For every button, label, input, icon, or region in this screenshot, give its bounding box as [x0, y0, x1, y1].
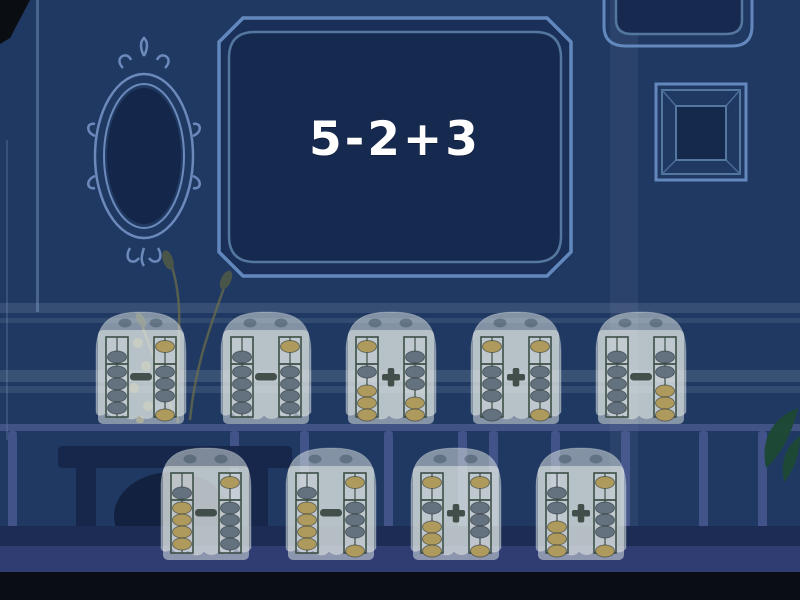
abacus-rod	[469, 473, 491, 557]
abacus-bead	[656, 366, 675, 378]
ghost-eye	[215, 455, 228, 464]
abacus-bead	[221, 526, 240, 538]
abacus-bead	[406, 409, 425, 421]
mirror	[85, 36, 203, 268]
abacus-bead	[406, 351, 425, 363]
abacus-rod	[529, 337, 551, 421]
abacus-bead	[108, 366, 127, 378]
abacus-bead	[656, 409, 675, 421]
abacus-bead	[406, 366, 425, 378]
abacus-bead	[531, 390, 550, 402]
abacus-bead	[233, 402, 252, 414]
abacus-rod	[594, 473, 616, 557]
abacus-bead	[596, 526, 615, 538]
abacus-bead	[596, 502, 615, 514]
abacus-bead	[281, 341, 300, 353]
ghost-eye	[244, 319, 257, 328]
abacus-rod	[154, 337, 176, 421]
minus-icon	[130, 373, 152, 381]
abacus-bead	[233, 390, 252, 402]
abacus-bead	[471, 526, 490, 538]
ghost-eye	[275, 319, 288, 328]
abacus-bead	[483, 390, 502, 402]
ghost-eye	[119, 319, 132, 328]
ghost-eye	[340, 455, 353, 464]
minus-icon	[255, 373, 277, 381]
ghost-eye	[465, 455, 478, 464]
abacus-bead	[156, 390, 175, 402]
abacus-rod	[279, 337, 301, 417]
abacus-bead	[281, 390, 300, 402]
abacus-bead	[596, 514, 615, 526]
abacus-rod	[171, 473, 193, 553]
ghost-eye	[494, 319, 507, 328]
plant-right	[750, 406, 800, 486]
door-edge-line	[6, 140, 8, 440]
abacus-bead	[108, 351, 127, 363]
abacus-rod	[219, 473, 241, 553]
abacus-bead	[548, 487, 567, 499]
abacus-bead	[346, 545, 365, 557]
abacus-bead	[233, 378, 252, 390]
abacus-bead	[656, 397, 675, 409]
abacus-bead	[608, 366, 627, 378]
answer-row-1	[85, 306, 697, 434]
abacus-bead	[608, 351, 627, 363]
letterbox-bar	[0, 572, 800, 600]
ceiling-corner-shadow	[0, 0, 30, 44]
abacus-rod	[106, 337, 128, 417]
abacus-bead	[483, 378, 502, 390]
abacus-bead	[406, 397, 425, 409]
question-text: 5-2+3	[213, 112, 577, 167]
abacus-rod	[654, 337, 676, 421]
abacus-rod	[296, 473, 318, 553]
abacus-bead	[548, 533, 567, 545]
abacus-bead	[608, 378, 627, 390]
answer-card-5[interactable]	[585, 306, 697, 434]
answer-card-4[interactable]	[460, 306, 572, 434]
abacus-bead	[108, 390, 127, 402]
abacus-bead	[423, 521, 442, 533]
abacus-bead	[531, 409, 550, 421]
abacus-bead	[233, 351, 252, 363]
abacus-bead	[483, 366, 502, 378]
answer-card-7[interactable]	[275, 442, 387, 570]
abacus-bead	[156, 409, 175, 421]
abacus-bead	[656, 385, 675, 397]
abacus-bead	[108, 402, 127, 414]
abacus-rod	[421, 473, 443, 557]
picture-frame-small	[652, 78, 752, 188]
abacus-bead	[531, 366, 550, 378]
abacus-bead	[221, 538, 240, 550]
abacus-rod	[231, 337, 253, 417]
abacus-bead	[346, 514, 365, 526]
abacus-bead	[483, 341, 502, 353]
mirror-glass	[107, 88, 181, 224]
abacus-rod	[404, 337, 426, 421]
abacus-rod	[606, 337, 628, 417]
abacus-bead	[298, 487, 317, 499]
answer-card-9[interactable]	[525, 442, 637, 570]
ghost-eye	[559, 455, 572, 464]
answer-card-8[interactable]	[400, 442, 512, 570]
abacus-bead	[173, 487, 192, 499]
abacus-rod	[481, 337, 503, 421]
abacus-bead	[471, 514, 490, 526]
abacus-bead	[358, 409, 377, 421]
ghost-eye	[309, 455, 322, 464]
abacus-bead	[173, 526, 192, 538]
abacus-bead	[656, 351, 675, 363]
abacus-bead	[548, 521, 567, 533]
abacus-bead	[108, 378, 127, 390]
abacus-bead	[346, 477, 365, 489]
abacus-bead	[281, 402, 300, 414]
abacus-bead	[346, 502, 365, 514]
minus-icon	[630, 373, 652, 381]
answer-card-2[interactable]	[210, 306, 322, 434]
abacus-bead	[221, 477, 240, 489]
abacus-bead	[173, 514, 192, 526]
abacus-bead	[346, 526, 365, 538]
abacus-bead	[298, 502, 317, 514]
abacus-rod	[344, 473, 366, 557]
minus-icon	[320, 509, 342, 517]
answer-card-3[interactable]	[335, 306, 447, 434]
abacus-bead	[423, 477, 442, 489]
abacus-bead	[156, 366, 175, 378]
abacus-bead	[298, 526, 317, 538]
abacus-bead	[423, 533, 442, 545]
answer-card-6[interactable]	[150, 442, 262, 570]
game-stage: 5-2+3	[0, 0, 800, 600]
abacus-bead	[548, 502, 567, 514]
abacus-bead	[173, 502, 192, 514]
abacus-bead	[358, 366, 377, 378]
abacus-bead	[406, 378, 425, 390]
abacus-bead	[358, 397, 377, 409]
abacus-bead	[423, 502, 442, 514]
abacus-bead	[281, 378, 300, 390]
abacus-bead	[471, 477, 490, 489]
abacus-bead	[233, 366, 252, 378]
answer-card-1[interactable]	[85, 306, 197, 434]
abacus-bead	[358, 341, 377, 353]
ghost-eye	[525, 319, 538, 328]
abacus-bead	[358, 385, 377, 397]
abacus-bead	[548, 545, 567, 557]
ghost-eye	[434, 455, 447, 464]
abacus-rod	[356, 337, 378, 421]
picture-frame-large	[596, 0, 760, 80]
abacus-bead	[596, 545, 615, 557]
abacus-bead	[471, 502, 490, 514]
minus-icon	[195, 509, 217, 517]
abacus-bead	[221, 514, 240, 526]
ghost-eye	[590, 455, 603, 464]
answer-row-2	[150, 442, 637, 570]
frame-canvas	[676, 106, 726, 160]
abacus-bead	[608, 390, 627, 402]
abacus-bead	[173, 538, 192, 550]
abacus-bead	[298, 538, 317, 550]
ghost-eye	[619, 319, 632, 328]
ghost-eye	[650, 319, 663, 328]
abacus-bead	[423, 545, 442, 557]
ghost-eye	[369, 319, 382, 328]
abacus-bead	[298, 514, 317, 526]
abacus-bead	[483, 409, 502, 421]
abacus-bead	[221, 502, 240, 514]
abacus-bead	[531, 378, 550, 390]
abacus-bead	[281, 366, 300, 378]
abacus-bead	[156, 341, 175, 353]
abacus-bead	[531, 341, 550, 353]
abacus-bead	[156, 378, 175, 390]
ghost-eye	[400, 319, 413, 328]
wall-corner-line	[36, 0, 39, 312]
abacus-bead	[471, 545, 490, 557]
ghost-eye	[184, 455, 197, 464]
abacus-bead	[596, 477, 615, 489]
abacus-bead	[608, 402, 627, 414]
abacus-rod	[546, 473, 568, 557]
ghost-eye	[150, 319, 163, 328]
